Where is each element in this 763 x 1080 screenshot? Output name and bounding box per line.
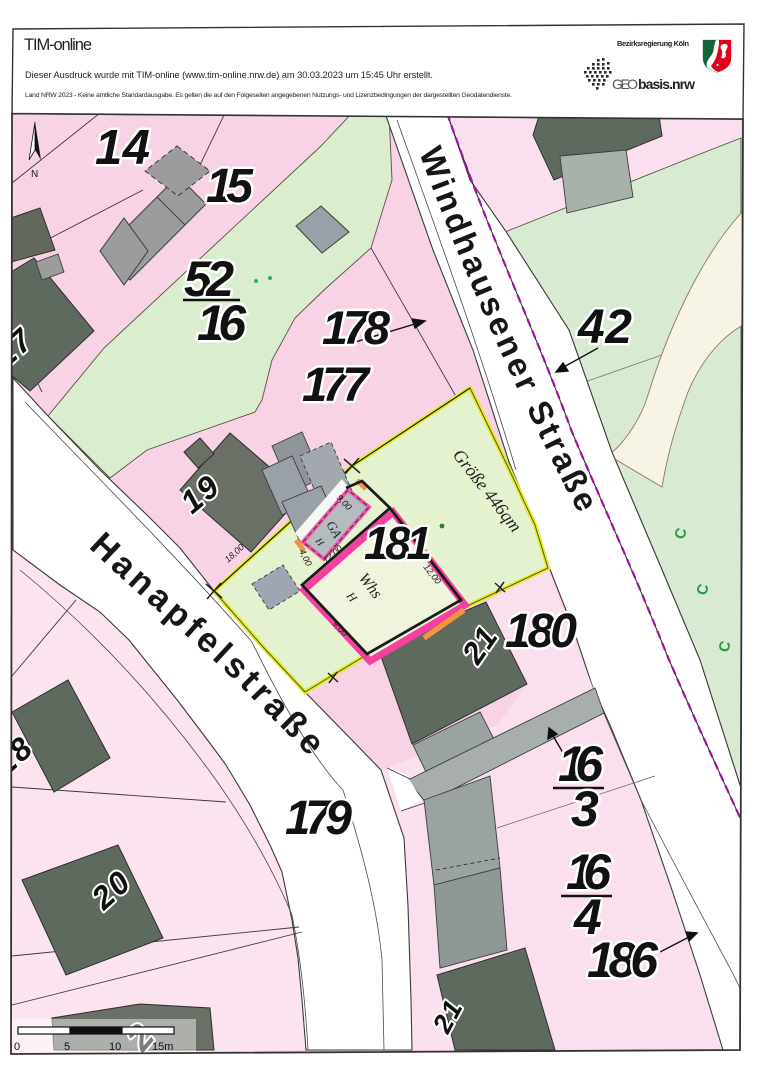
svg-text:42: 42 [577,301,632,354]
svg-text:181: 181 [364,517,432,569]
svg-text:177: 177 [302,359,371,412]
svg-text:178: 178 [322,301,391,354]
svg-text:4: 4 [573,889,602,945]
svg-text:basis.nrw: basis.nrw [638,76,695,92]
svg-text:180: 180 [505,605,577,658]
svg-text:Land NRW 2023 - Keine amtliche: Land NRW 2023 - Keine amtliche Standarda… [25,92,512,99]
svg-text:0: 0 [14,1041,20,1053]
svg-text:Bezirksregierung Köln: Bezirksregierung Köln [617,39,689,48]
svg-text:14: 14 [95,121,150,175]
svg-text:Dieser Ausdruck wurde mit TIM-: Dieser Ausdruck wurde mit TIM-online (ww… [25,70,433,80]
svg-text:10: 10 [109,1041,121,1053]
svg-text:3: 3 [571,781,599,837]
svg-text:5: 5 [64,1041,70,1053]
svg-text:16: 16 [197,295,247,351]
svg-text:N: N [31,169,38,180]
svg-text:TIM-online: TIM-online [24,36,92,54]
svg-text:15: 15 [206,160,254,213]
svg-text:179: 179 [285,792,352,845]
svg-text:GEO: GEO [612,76,638,92]
svg-text:15m: 15m [152,1041,173,1053]
